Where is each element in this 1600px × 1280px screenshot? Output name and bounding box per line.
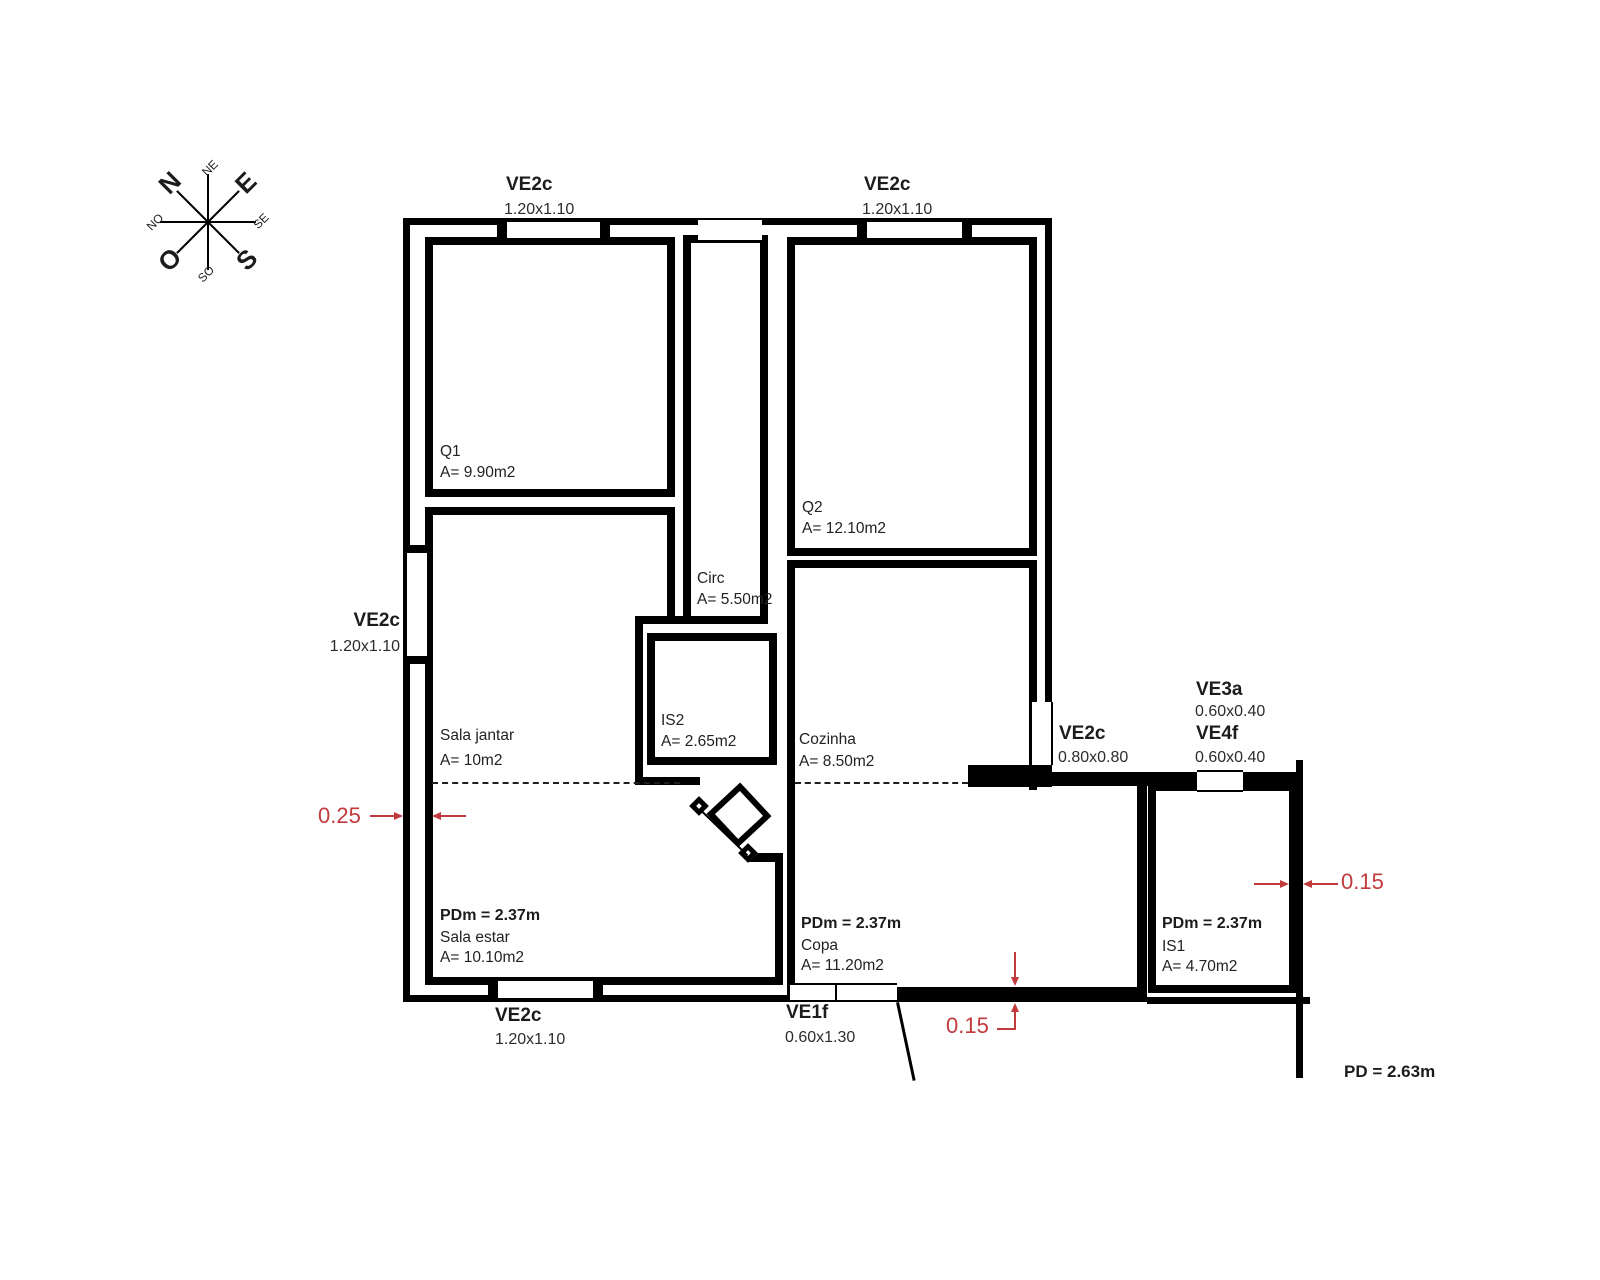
room-label-sala-estar: Sala estar [440, 929, 510, 946]
dimension-wall-right-line-b [1312, 883, 1338, 885]
wall-copa-right [1137, 785, 1147, 990]
dimension-arrowhead-left [432, 812, 441, 820]
dimension-wall-left-line-a [370, 815, 395, 817]
window-label-ve4f: VE4f [1196, 724, 1238, 745]
window-label-ve1f: VE1f [786, 1003, 828, 1024]
room-label-is2: IS2 [661, 712, 684, 729]
room-pdm-copa: PDm = 2.37m [801, 915, 901, 933]
room-q1-outline [425, 237, 675, 497]
window-label-ve2c-top-right: VE2c [864, 175, 910, 196]
room-pdm-is1: PDm = 2.37m [1162, 915, 1262, 933]
wall-sala-bottom [425, 977, 783, 985]
dimension-arrowhead-left-2 [1303, 880, 1312, 888]
wall-copa-left [787, 785, 795, 1002]
wall-sala-jantar-right [667, 507, 675, 624]
window-label-ve2c-top-left: VE2c [506, 175, 552, 196]
window-ve2c-right [1030, 702, 1053, 765]
dimension-wall-right-line-a [1254, 883, 1281, 885]
room-area-is2: A= 2.65m2 [661, 733, 736, 750]
dimension-wall-left-value: 0.25 [318, 804, 361, 828]
dimension-wall-bottom-line-top [1014, 952, 1016, 977]
window-size-ve3a: 0.60x0.40 [1195, 703, 1265, 721]
dimension-arrowhead-down [1011, 977, 1019, 986]
window-ve1f-divider [835, 983, 837, 1002]
window-label-ve2c-bottom: VE2c [495, 1006, 541, 1027]
window-ve4f [1197, 770, 1243, 792]
wall-junction-right [968, 765, 1052, 787]
window-ve2c-top-right [867, 220, 962, 240]
floor-plan-drawing [0, 0, 1600, 1280]
room-area-copa: A= 11.20m2 [801, 957, 884, 974]
window-jamb [857, 218, 867, 243]
dimension-wall-left-line-b [441, 815, 466, 817]
room-area-sala-estar: A= 10.10m2 [440, 949, 524, 966]
wall-sala-right-lower [775, 855, 783, 985]
wall-jog-top [635, 616, 683, 624]
wall-is1-top-left [1052, 772, 1197, 786]
window-jamb [962, 218, 972, 243]
outer-wall-right-lower [1296, 760, 1303, 1078]
ceiling-height-label: PD = 2.63m [1344, 1063, 1435, 1082]
dimension-wall-bottom-value: 0.15 [946, 1014, 989, 1038]
room-area-q2: A= 12.10m2 [802, 520, 886, 537]
room-circ-outline [683, 235, 768, 624]
room-label-is1: IS1 [1162, 938, 1185, 955]
room-area-circ: A= 5.50m2 [697, 591, 772, 608]
dimension-wall-right-value: 0.15 [1341, 870, 1384, 894]
window-label-ve2c-right: VE2c [1059, 724, 1105, 745]
window-ve2c-left [405, 553, 429, 656]
room-label-circ: Circ [697, 570, 725, 587]
window-size-ve2c-top-left: 1.20x1.10 [504, 201, 574, 219]
window-label-ve3a: VE3a [1196, 680, 1242, 701]
window-size-ve2c-top-right: 1.20x1.10 [862, 201, 932, 219]
window-jamb [600, 218, 610, 243]
dimension-arrowhead-up [1011, 1003, 1019, 1012]
room-label-cozinha: Cozinha [799, 731, 856, 748]
wall-copa-bottom [897, 987, 1147, 1002]
dimension-arrowhead-right-2 [1280, 880, 1289, 888]
window-ve2c-bottom [498, 979, 593, 1000]
room-q2-outline [787, 237, 1037, 556]
outer-wall-bottom-right [1147, 997, 1310, 1004]
door-leaf [706, 782, 771, 847]
room-label-sala-jantar: Sala jantar [440, 727, 514, 744]
room-area-sala-jantar: A= 10m2 [440, 752, 502, 769]
floor-plan-sheet: N E O S NE SE SO NO VE2c 1.20x1.10 VE2c … [0, 0, 1600, 1280]
window-size-ve1f: 0.60x1.30 [785, 1029, 855, 1047]
ve1f-door-swing-line [896, 1002, 916, 1081]
dimension-arrowhead-right [394, 812, 403, 820]
window-size-ve2c-right: 0.80x0.80 [1058, 749, 1128, 767]
window-size-ve2c-bottom: 1.20x1.10 [495, 1031, 565, 1049]
room-label-q2: Q2 [802, 499, 823, 516]
window-ve1f [790, 983, 897, 1002]
room-area-is1: A= 4.70m2 [1162, 958, 1237, 975]
room-label-copa: Copa [801, 937, 838, 954]
dimension-wall-bottom-leader [997, 1028, 1016, 1030]
window-label-ve2c-left: VE2c [300, 611, 400, 632]
wall-sala-top [425, 507, 675, 515]
window-jamb [497, 218, 507, 243]
room-area-q1: A= 9.90m2 [440, 464, 515, 481]
window-size-ve2c-left: 1.20x1.10 [300, 638, 400, 656]
room-pdm-sala-estar: PDm = 2.37m [440, 907, 540, 925]
window-circ-top-opening [698, 218, 762, 242]
dashed-line-right [795, 782, 968, 784]
window-size-ve4f: 0.60x0.40 [1195, 749, 1265, 767]
dashed-line-left [432, 782, 680, 784]
room-label-q1: Q1 [440, 443, 461, 460]
wall-is2-left [635, 616, 643, 785]
window-ve2c-top-left [507, 220, 600, 240]
outer-wall-right-upper [1045, 218, 1052, 707]
wall-is1-top-right [1243, 772, 1296, 786]
room-area-cozinha: A= 8.50m2 [799, 753, 874, 770]
